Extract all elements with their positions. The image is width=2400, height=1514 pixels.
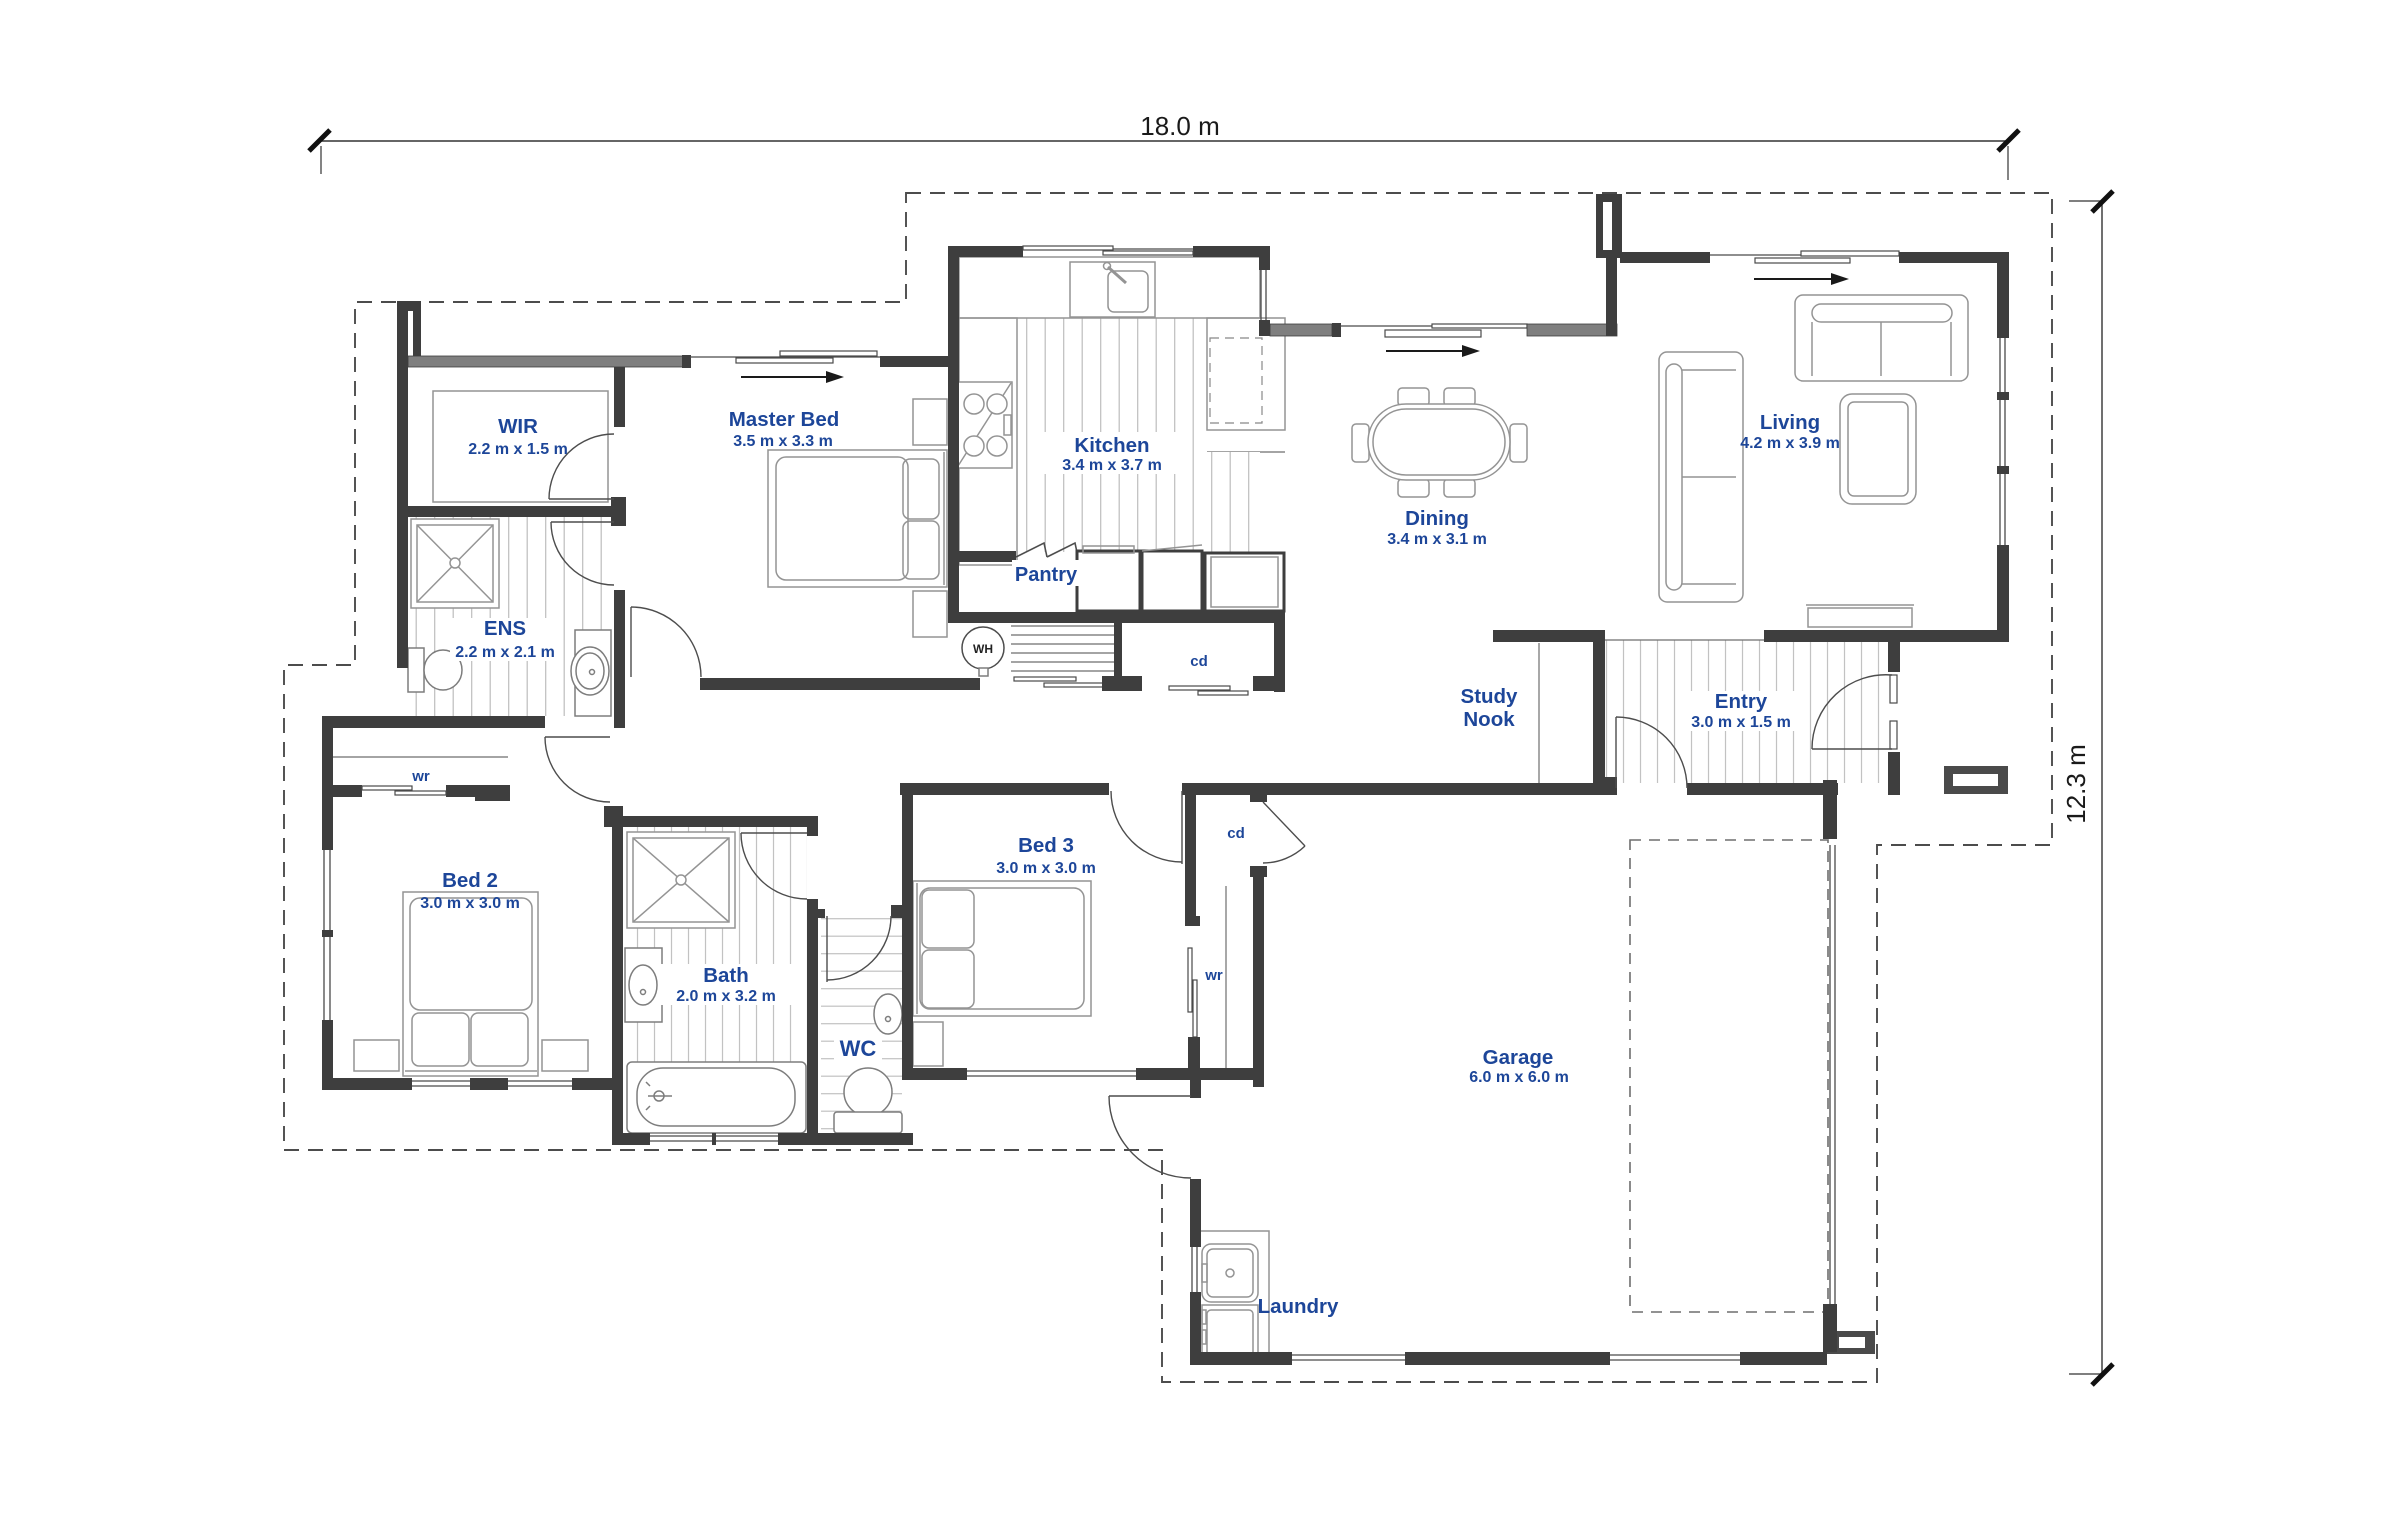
svg-text:WC: WC bbox=[840, 1036, 877, 1061]
svg-text:Bath: Bath bbox=[703, 964, 749, 987]
svg-text:Living: Living bbox=[1760, 411, 1820, 434]
svg-text:wr: wr bbox=[1204, 967, 1223, 984]
svg-text:Dining: Dining bbox=[1405, 507, 1469, 530]
svg-text:3.0 m x 3.0 m: 3.0 m x 3.0 m bbox=[996, 860, 1096, 877]
svg-text:ENS: ENS bbox=[484, 617, 526, 640]
svg-text:2.2 m x 2.1 m: 2.2 m x 2.1 m bbox=[455, 644, 555, 661]
svg-text:4.2 m x 3.9 m: 4.2 m x 3.9 m bbox=[1740, 435, 1840, 452]
svg-text:2.0 m x 3.2 m: 2.0 m x 3.2 m bbox=[676, 988, 776, 1005]
svg-text:cd: cd bbox=[1227, 825, 1245, 842]
svg-text:Kitchen: Kitchen bbox=[1074, 434, 1149, 457]
svg-text:WIR: WIR bbox=[498, 415, 538, 438]
svg-text:2.2 m x 1.5 m: 2.2 m x 1.5 m bbox=[468, 441, 568, 458]
svg-text:WH: WH bbox=[973, 642, 993, 656]
svg-text:Study: Study bbox=[1461, 685, 1519, 708]
svg-text:Garage: Garage bbox=[1483, 1046, 1554, 1069]
svg-text:3.0 m x 1.5 m: 3.0 m x 1.5 m bbox=[1691, 714, 1791, 731]
svg-text:wr: wr bbox=[411, 768, 430, 785]
svg-text:3.4 m x 3.1 m: 3.4 m x 3.1 m bbox=[1387, 531, 1487, 548]
svg-text:Bed 2: Bed 2 bbox=[442, 869, 498, 892]
svg-text:Bed 3: Bed 3 bbox=[1018, 834, 1074, 857]
svg-text:Entry: Entry bbox=[1715, 690, 1768, 713]
svg-text:6.0 m x 6.0 m: 6.0 m x 6.0 m bbox=[1469, 1069, 1569, 1086]
svg-text:3.0 m x 3.0 m: 3.0 m x 3.0 m bbox=[420, 895, 520, 912]
svg-text:3.5 m x 3.3 m: 3.5 m x 3.3 m bbox=[733, 433, 833, 450]
svg-text:cd: cd bbox=[1190, 653, 1208, 670]
svg-text:Laundry: Laundry bbox=[1258, 1295, 1339, 1318]
svg-text:18.0 m: 18.0 m bbox=[1140, 111, 1220, 141]
svg-text:Master Bed: Master Bed bbox=[729, 408, 840, 431]
svg-text:Pantry: Pantry bbox=[1015, 564, 1078, 586]
svg-text:3.4 m x 3.7 m: 3.4 m x 3.7 m bbox=[1062, 457, 1162, 474]
svg-text:Nook: Nook bbox=[1463, 708, 1515, 731]
svg-text:12.3 m: 12.3 m bbox=[2061, 744, 2091, 824]
